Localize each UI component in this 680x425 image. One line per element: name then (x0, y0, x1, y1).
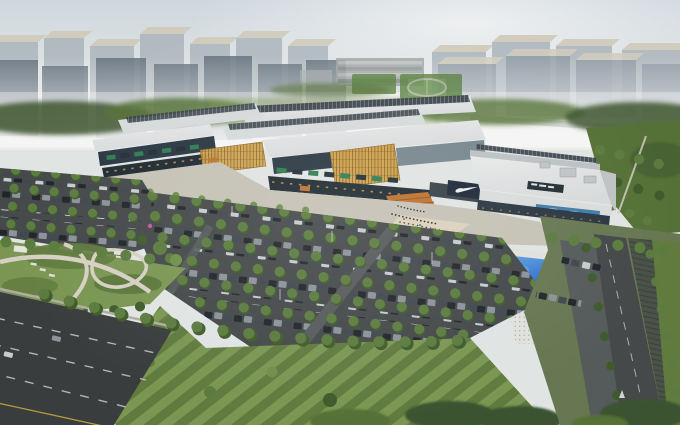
vignette (0, 0, 680, 425)
aerial-rendering (0, 0, 680, 425)
rendering-image: Bird's-eye rendering of a long low-rise … (0, 0, 680, 425)
